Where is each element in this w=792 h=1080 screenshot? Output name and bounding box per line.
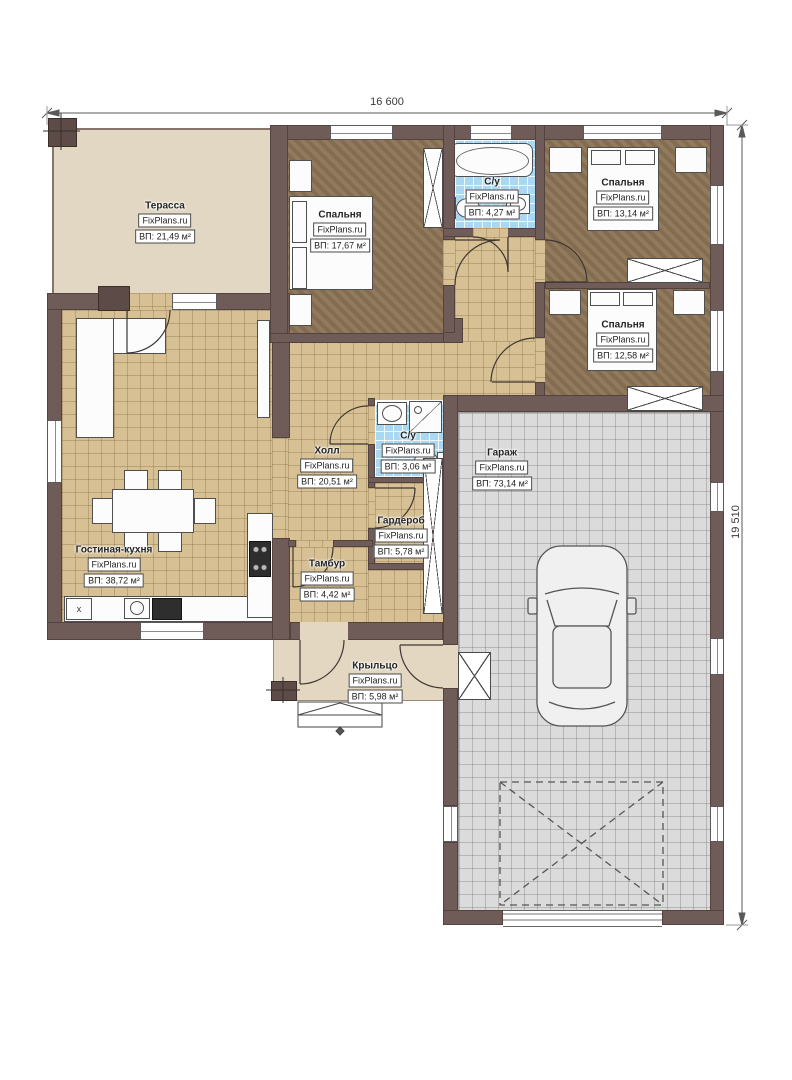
entry-steps [298, 702, 382, 735]
vent-shaft [423, 148, 443, 228]
room-name: Спальня [318, 210, 361, 221]
room-label-tambour: Тамбур FixPlans.ru ВП: 4,42 м² [300, 559, 355, 602]
window [710, 638, 724, 675]
entry-door-opening [300, 622, 348, 640]
window [330, 125, 393, 140]
kitchen-sink-basin [130, 601, 144, 615]
room-area: ВП: 38,72 м² [84, 574, 144, 588]
room-label-porch: Крыльцо FixPlans.ru ВП: 5,98 м² [348, 661, 403, 704]
door-opening [535, 338, 545, 382]
window [47, 420, 62, 483]
room-label-bathroom1: С/у FixPlans.ru ВП: 4,27 м² [465, 177, 520, 220]
room-area: ВП: 13,14 м² [593, 207, 653, 221]
door-opening [296, 540, 333, 547]
watermark: FixPlans.ru [300, 572, 353, 586]
terrace-post [48, 118, 77, 147]
shower-head [414, 406, 422, 414]
wall-segment [710, 125, 724, 925]
room-area: ВП: 20,51 м² [297, 475, 357, 489]
pillow [590, 292, 620, 306]
watermark: FixPlans.ru [313, 223, 366, 237]
door-opening [443, 645, 458, 688]
pillow [292, 201, 307, 243]
window [710, 310, 724, 372]
wall-segment [535, 282, 545, 338]
wall-segment [545, 282, 710, 289]
shower [409, 401, 442, 433]
room-name: Холл [314, 446, 339, 457]
nightstand [289, 160, 312, 192]
pillow [591, 150, 621, 165]
wall-segment [333, 540, 373, 547]
room-label-bedroom1: Спальня FixPlans.ru ВП: 17,67 м² [310, 210, 370, 253]
watermark: FixPlans.ru [381, 444, 434, 458]
room-label-garage: Гараж FixPlans.ru ВП: 73,14 м² [472, 448, 532, 491]
wall-segment [368, 398, 375, 406]
nightstand [549, 147, 582, 173]
nightstand [673, 290, 705, 315]
window [470, 125, 512, 140]
room-name: С/у [400, 431, 416, 442]
wall-segment [272, 538, 290, 640]
washer-mark: x [67, 599, 91, 619]
watermark: FixPlans.ru [596, 333, 649, 347]
wall-segment [368, 563, 426, 570]
wall-segment [443, 910, 503, 925]
watermark: FixPlans.ru [87, 558, 140, 572]
wall-segment [270, 333, 463, 343]
wall-segment [443, 285, 455, 333]
pillar [98, 286, 130, 311]
window [140, 622, 204, 640]
room-label-bedroom3: Спальня FixPlans.ru ВП: 12,58 м² [593, 320, 653, 363]
nightstand [549, 290, 581, 315]
room-label-wardrobe: Гардероб FixPlans.ru ВП: 5,78 м² [374, 516, 429, 559]
wall-segment [443, 688, 458, 806]
room-name: Тамбур [309, 559, 345, 570]
door-opening [473, 228, 508, 237]
sink-basin [382, 405, 402, 422]
window [443, 806, 458, 842]
bathtub-basin [456, 147, 529, 175]
dishwasher [152, 598, 182, 620]
room-area: ВП: 4,42 м² [300, 588, 355, 602]
cooktop [249, 541, 271, 577]
dimension-right: 19 510 [730, 492, 742, 552]
wall-segment [443, 395, 458, 645]
room-name: Крыльцо [352, 661, 398, 672]
room-name: Спальня [601, 320, 644, 331]
pillow [625, 150, 655, 165]
wall-segment [270, 125, 288, 341]
corridor-floor [455, 237, 535, 341]
pillow [623, 292, 653, 306]
window [583, 125, 662, 140]
window [710, 806, 724, 842]
chair [92, 498, 114, 524]
closet [458, 652, 491, 700]
nightstand [675, 147, 707, 173]
door-opening [443, 240, 455, 285]
door-opening [368, 406, 375, 444]
wall-segment [443, 125, 455, 240]
watermark: FixPlans.ru [348, 674, 401, 688]
room-label-bedroom2: Спальня FixPlans.ru ВП: 13,14 м² [593, 178, 653, 221]
wall-segment [288, 540, 296, 547]
room-area: ВП: 73,14 м² [472, 477, 532, 491]
watermark: FixPlans.ru [300, 459, 353, 473]
pillow [292, 247, 307, 289]
sofa-chaise [76, 318, 114, 438]
room-name: Терасса [145, 201, 185, 212]
watermark: FixPlans.ru [138, 214, 191, 228]
room-label-living: Гостиная-кухня FixPlans.ru ВП: 38,72 м² [76, 545, 153, 588]
garage-door-opening [503, 910, 662, 927]
nightstand [289, 294, 312, 326]
window [172, 293, 217, 310]
porch-post [271, 681, 297, 701]
wall-segment [662, 910, 724, 925]
dining-table [112, 489, 194, 533]
room-label-bathroom2: С/у FixPlans.ru ВП: 3,06 м² [381, 431, 436, 474]
room-name: Спальня [601, 178, 644, 189]
chair [194, 498, 216, 524]
door-opening [535, 240, 545, 282]
wall-segment [535, 125, 545, 240]
watermark: FixPlans.ru [374, 529, 427, 543]
room-label-terrace: Терасса FixPlans.ru ВП: 21,49 м² [135, 201, 195, 244]
closet [627, 386, 703, 411]
watermark: FixPlans.ru [596, 191, 649, 205]
window [710, 185, 724, 245]
room-area: ВП: 21,49 м² [135, 230, 195, 244]
room-label-hall: Холл FixPlans.ru ВП: 20,51 м² [297, 446, 357, 489]
washing-machine: x [66, 598, 92, 620]
door-opening [126, 293, 172, 310]
tv-stand [257, 320, 270, 418]
chair [158, 530, 182, 552]
floor-plan: x [0, 0, 792, 1080]
room-area: ВП: 4,27 м² [465, 206, 520, 220]
watermark: FixPlans.ru [465, 190, 518, 204]
room-name: Гараж [487, 448, 517, 459]
window [710, 482, 724, 512]
room-name: Гостиная-кухня [76, 545, 153, 556]
room-area: ВП: 12,58 м² [593, 349, 653, 363]
dimension-top: 16 600 [355, 96, 419, 108]
room-area: ВП: 17,67 м² [310, 239, 370, 253]
hall-floor [288, 341, 535, 400]
room-area: ВП: 5,78 м² [374, 545, 429, 559]
closet [627, 258, 703, 283]
watermark: FixPlans.ru [475, 461, 528, 475]
room-area: ВП: 5,98 м² [348, 690, 403, 704]
room-name: С/у [484, 177, 500, 188]
room-area: ВП: 3,06 м² [381, 460, 436, 474]
room-name: Гардероб [377, 516, 424, 527]
